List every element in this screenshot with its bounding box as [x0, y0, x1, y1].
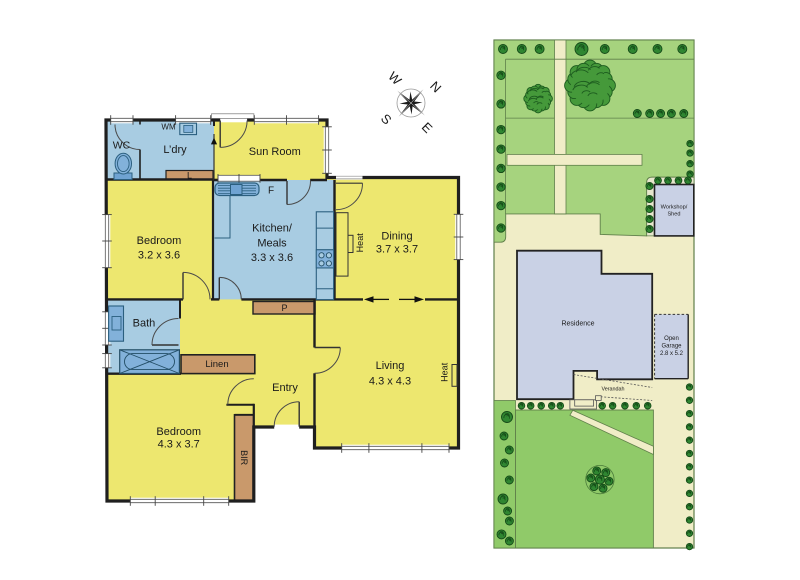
- svg-text:Kitchen/: Kitchen/: [252, 223, 293, 235]
- svg-text:Bedroom: Bedroom: [137, 235, 182, 247]
- svg-text:BIR: BIR: [239, 450, 249, 466]
- svg-text:F: F: [268, 186, 274, 197]
- svg-text:2.8 x 5.2: 2.8 x 5.2: [660, 351, 684, 357]
- svg-text:N: N: [427, 78, 444, 95]
- svg-text:Heat: Heat: [439, 362, 449, 382]
- svg-text:Dining: Dining: [381, 230, 412, 242]
- svg-text:Heat: Heat: [355, 233, 365, 253]
- svg-text:Shed: Shed: [667, 212, 680, 218]
- svg-text:4.3 x 3.7: 4.3 x 3.7: [158, 438, 200, 450]
- svg-text:W: W: [385, 69, 405, 89]
- svg-text:Verandah: Verandah: [601, 387, 624, 393]
- svg-text:Garage: Garage: [661, 344, 682, 350]
- svg-text:WM: WM: [161, 123, 176, 132]
- svg-text:Bath: Bath: [133, 318, 156, 330]
- svg-text:3.3 x 3.6: 3.3 x 3.6: [251, 252, 293, 264]
- svg-text:4.3 x 4.3: 4.3 x 4.3: [369, 376, 411, 388]
- svg-text:L’dry: L’dry: [163, 144, 187, 156]
- svg-text:Bedroom: Bedroom: [156, 426, 201, 438]
- svg-text:P: P: [281, 303, 287, 313]
- svg-text:Entry: Entry: [272, 382, 298, 394]
- svg-text:S: S: [378, 111, 395, 128]
- svg-text:E: E: [419, 119, 436, 136]
- svg-text:Sun Room: Sun Room: [249, 146, 301, 158]
- svg-text:Workshop/: Workshop/: [661, 205, 688, 211]
- svg-text:Residence: Residence: [561, 321, 594, 328]
- svg-text:Meals: Meals: [257, 237, 287, 249]
- svg-text:L: L: [187, 170, 192, 180]
- svg-text:3.7 x 3.7: 3.7 x 3.7: [376, 244, 418, 256]
- svg-text:Linen: Linen: [205, 359, 228, 370]
- svg-text:Living: Living: [376, 360, 405, 372]
- svg-text:3.2 x 3.6: 3.2 x 3.6: [138, 250, 180, 262]
- svg-text:WC: WC: [113, 140, 131, 152]
- svg-text:Open: Open: [664, 336, 679, 342]
